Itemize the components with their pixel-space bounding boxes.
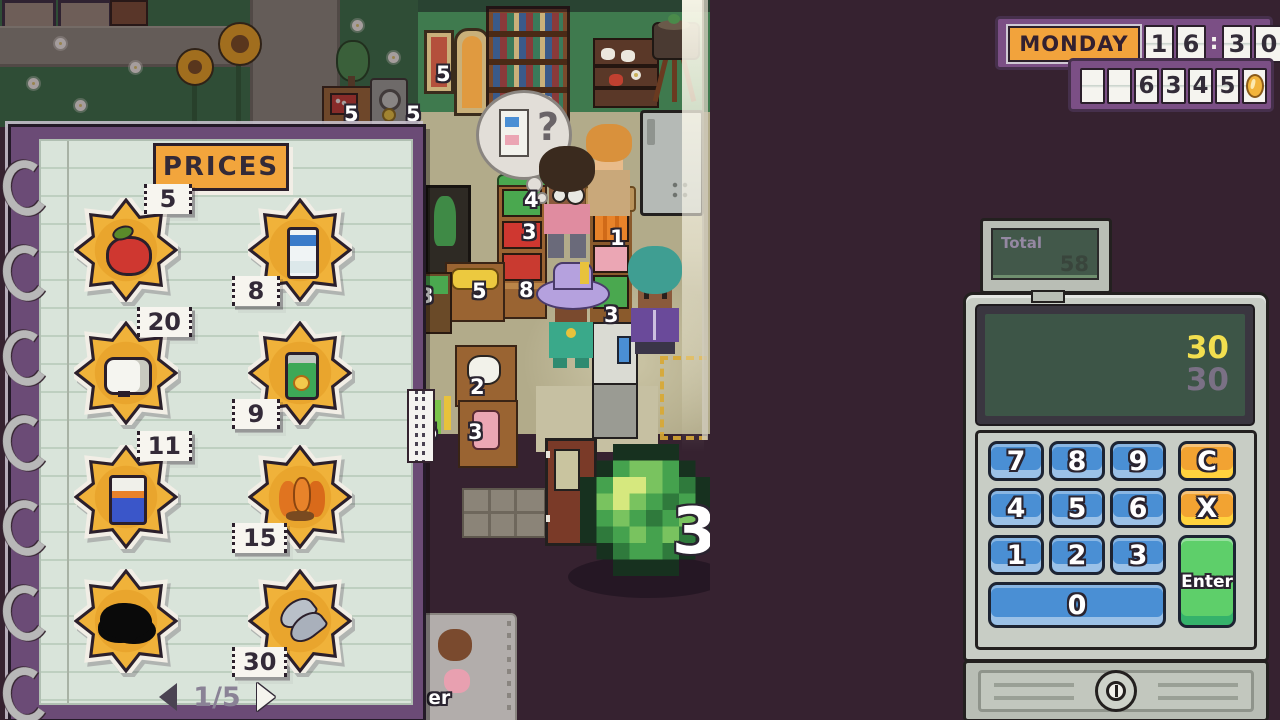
- money-panel: 6 3 4 5: [1068, 58, 1274, 112]
- price-badge-apple[interactable]: 5: [74, 198, 178, 302]
- key-cancel[interactable]: X: [1178, 488, 1236, 528]
- coin-cell: [1242, 68, 1267, 104]
- key-1[interactable]: 1: [988, 535, 1044, 575]
- player-character: [536, 260, 606, 368]
- prev-page-button[interactable]: [159, 683, 177, 711]
- item-quantity: 3: [672, 500, 710, 564]
- small-tree-trunk: [348, 76, 355, 102]
- money-digit: 4: [1188, 68, 1213, 104]
- milk-carton-icon: [276, 226, 324, 274]
- drawer-groove: [1158, 696, 1238, 700]
- drawer-groove: [994, 696, 1074, 700]
- key-2[interactable]: 2: [1049, 535, 1105, 575]
- customer-pink-shirt: [538, 146, 596, 264]
- price-badge-fish-food[interactable]: 11: [74, 445, 178, 549]
- cash-drawer: [963, 660, 1269, 720]
- shelf-price-tag: 5: [406, 102, 421, 126]
- key-3[interactable]: 3: [1110, 535, 1166, 575]
- money-display: 6 3 4 5: [1080, 68, 1267, 104]
- money-digit: [1107, 68, 1132, 104]
- sunflower-icon: [218, 22, 262, 66]
- doorway-light: [682, 0, 704, 452]
- money-digit: 3: [1161, 68, 1186, 104]
- sunflower-stem: [192, 70, 197, 126]
- total-label: Total: [1001, 234, 1042, 252]
- customer-teal-hair: [626, 246, 684, 358]
- wall-picture: [2, 0, 56, 32]
- wall-edge: [702, 0, 708, 440]
- garden-machine: [370, 78, 408, 127]
- shelf-price-tag: 1: [610, 226, 625, 250]
- page-navigation: 1/5: [11, 679, 423, 715]
- price-tag: 15: [232, 523, 287, 553]
- question-mark: ?: [537, 105, 559, 149]
- ceiling-shadow: [418, 0, 710, 12]
- toilet-paper-shelf: [455, 345, 517, 407]
- wall-flower-icon: [631, 70, 641, 80]
- receipt-fragment: er: [418, 613, 517, 720]
- shop-interior: ?: [418, 0, 710, 720]
- monitor-screen: Total 58: [991, 228, 1099, 280]
- sunflower-icon: [176, 48, 214, 86]
- toilet-paper-icon: [102, 349, 150, 397]
- price-tag: 30: [232, 647, 287, 677]
- total-value: 58: [1060, 252, 1089, 276]
- receipt-text: er: [428, 687, 450, 709]
- canned-drink-icon: [276, 349, 324, 397]
- display-shelf: [593, 38, 659, 108]
- price-badge-unknown-item[interactable]: [74, 569, 178, 673]
- shelf-price-tag: 4: [524, 188, 539, 212]
- next-page-button[interactable]: [257, 683, 275, 711]
- price-badge-canned-drink[interactable]: 9: [248, 321, 352, 425]
- price-tag: 8: [232, 276, 280, 306]
- garden-path: [0, 26, 258, 67]
- small-tree: [336, 40, 370, 82]
- flower-icon: [75, 100, 86, 111]
- pink-bag-shelf: [458, 400, 518, 468]
- price-tag: 9: [232, 399, 280, 429]
- gold-coin-icon: [1246, 74, 1264, 98]
- key-8[interactable]: 8: [1049, 441, 1105, 481]
- fridge-icon: [499, 109, 529, 157]
- shelf-price-tag: 2: [470, 375, 485, 399]
- day-label: MONDAY: [1008, 26, 1140, 62]
- key-enter[interactable]: Enter: [1178, 535, 1236, 628]
- shelf-price-tag: 5: [344, 102, 359, 126]
- money-digit: [1080, 68, 1105, 104]
- key-0[interactable]: 0: [988, 582, 1166, 628]
- flower-icon: [55, 38, 66, 49]
- register-display: 30 30: [975, 304, 1255, 426]
- drawer-groove: [994, 683, 1074, 687]
- unknown-item-icon: [102, 597, 150, 645]
- crate: [110, 0, 148, 26]
- flower-icon: [352, 20, 363, 31]
- plant-stand-leg: [672, 58, 677, 102]
- price-badge-carrots[interactable]: 15: [248, 445, 352, 549]
- apple-icon: [102, 226, 150, 274]
- prices-notebook: PRICES 5 8 20 9 11 15: [8, 124, 426, 720]
- price-tag: 11: [137, 431, 192, 461]
- key-7[interactable]: 7: [988, 441, 1044, 481]
- price-tag: 5: [144, 184, 192, 214]
- game-screen: ?: [0, 0, 1280, 720]
- shelf-price-tag: 8: [519, 278, 534, 302]
- money-digit: 6: [1134, 68, 1159, 104]
- price-badge-toilet-paper[interactable]: 20: [74, 321, 178, 425]
- key-5[interactable]: 5: [1049, 488, 1105, 528]
- price-badge-fish[interactable]: 30: [248, 569, 352, 673]
- garden-path: [250, 0, 340, 127]
- register-screen: 30 30: [985, 314, 1245, 416]
- total-monitor: Total 58: [980, 218, 1112, 294]
- shelf-price-tag: 5: [472, 279, 487, 303]
- key-4[interactable]: 4: [988, 488, 1044, 528]
- carrots-icon: [276, 473, 324, 521]
- key-9[interactable]: 9: [1110, 441, 1166, 481]
- floor-tiles: [462, 488, 546, 538]
- shelf-price-tag: 5: [436, 62, 451, 86]
- yellow-flower-icon: [382, 108, 396, 122]
- flower-icon: [130, 62, 141, 73]
- price-tag: 20: [137, 307, 192, 337]
- time-colon: :: [1208, 25, 1220, 59]
- monitor-stand: [1031, 290, 1065, 303]
- fish-food-box-icon: [102, 473, 150, 521]
- shelf-price-tag: 3: [604, 303, 619, 327]
- target-amount: 30: [1186, 365, 1229, 397]
- shelf-price-tag: 3: [522, 220, 537, 244]
- page-indicator: 1/5: [193, 682, 240, 713]
- flower-icon: [388, 52, 399, 63]
- price-badge-milk-carton[interactable]: 8: [248, 198, 352, 302]
- page-curl: [407, 389, 435, 463]
- key-6[interactable]: 6: [1110, 488, 1166, 528]
- shelf-price-tag: 3: [468, 420, 483, 444]
- drawer-groove: [1158, 683, 1238, 687]
- fish-icon: [276, 597, 324, 645]
- entered-amount: 30: [1186, 333, 1229, 365]
- arched-picture: [454, 28, 490, 116]
- flower-icon: [28, 78, 39, 89]
- money-digit: 5: [1215, 68, 1240, 104]
- keyhole-icon: [1095, 670, 1137, 712]
- key-clear[interactable]: C: [1178, 441, 1236, 481]
- sunflower-stem: [236, 58, 241, 126]
- wall-picture: [58, 0, 112, 32]
